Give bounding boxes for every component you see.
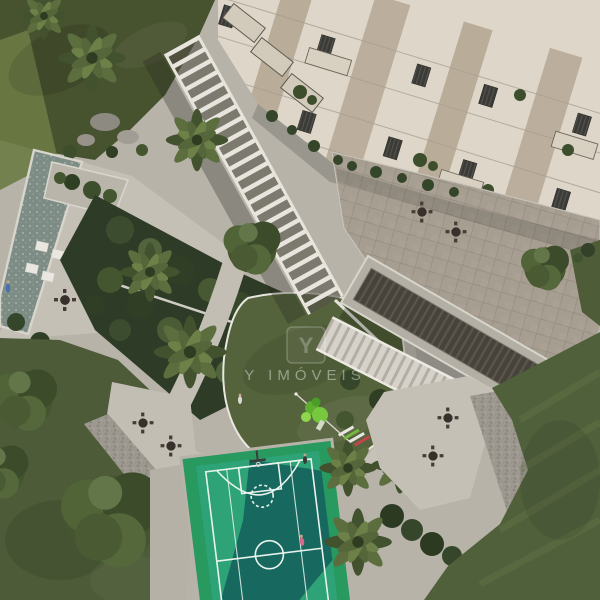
- palm-tree: [120, 242, 180, 302]
- palm-tree: [154, 316, 227, 389]
- palm-tree: [319, 439, 376, 496]
- aerial-render: Y Y IMÓVEIS: [0, 0, 600, 600]
- palm-tree: [324, 508, 392, 576]
- palm-tree: [166, 109, 228, 171]
- palm-tree: [58, 24, 126, 92]
- aerial-render-canvas: Y Y IMÓVEIS: [0, 0, 600, 600]
- watermark-monogram: Y: [299, 333, 314, 358]
- watermark-text: Y IMÓVEIS: [244, 367, 365, 384]
